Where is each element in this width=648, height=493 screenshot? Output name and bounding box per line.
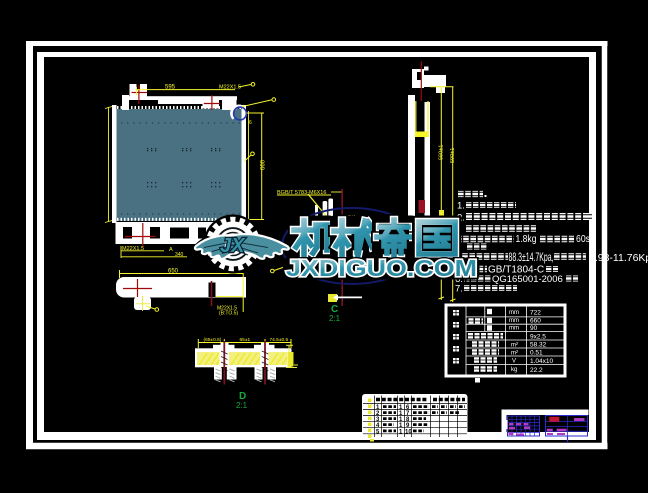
svg-text:590±1: 590±1 bbox=[450, 148, 456, 163]
svg-text:m²: m² bbox=[511, 343, 518, 349]
svg-text:7.: 7. bbox=[455, 284, 463, 295]
svg-text:88.3±14.7Kpa,: 88.3±14.7Kpa, bbox=[509, 250, 554, 264]
svg-text:1.: 1. bbox=[457, 201, 465, 212]
svg-text:QG165001-2006: QG165001-2006 bbox=[492, 274, 563, 285]
svg-text:1.04x10: 1.04x10 bbox=[530, 358, 554, 365]
svg-text:10: 10 bbox=[405, 430, 412, 436]
svg-text:0.51: 0.51 bbox=[530, 350, 543, 357]
svg-text:m²: m² bbox=[511, 351, 518, 357]
svg-text:A: A bbox=[169, 247, 173, 253]
svg-text:2:1: 2:1 bbox=[329, 314, 341, 323]
svg-text:74.5±0.5: 74.5±0.5 bbox=[270, 337, 289, 343]
svg-text:JX: JX bbox=[220, 235, 246, 257]
svg-text:6: 6 bbox=[249, 120, 252, 126]
svg-text:V: V bbox=[512, 359, 516, 365]
svg-text:58.32: 58.32 bbox=[530, 342, 547, 349]
svg-text:kg: kg bbox=[511, 367, 517, 373]
svg-text:M22X1.5: M22X1.5 bbox=[219, 85, 241, 91]
svg-text:65±1: 65±1 bbox=[240, 337, 251, 343]
svg-text:60s: 60s bbox=[576, 233, 590, 245]
svg-text:mm: mm bbox=[509, 310, 519, 316]
svg-text:660: 660 bbox=[261, 159, 267, 170]
svg-text:mm: mm bbox=[509, 326, 519, 332]
svg-text:JXDIGUO.COM: JXDIGUO.COM bbox=[286, 255, 477, 281]
svg-text:1.8kg: 1.8kg bbox=[516, 233, 537, 245]
svg-text:650: 650 bbox=[168, 269, 179, 275]
svg-text:mm: mm bbox=[509, 318, 519, 324]
svg-text:340: 340 bbox=[175, 252, 184, 258]
svg-text:2:1: 2:1 bbox=[236, 401, 248, 410]
svg-text:9x2.5: 9x2.5 bbox=[530, 334, 546, 341]
svg-text:90: 90 bbox=[530, 325, 538, 332]
svg-text:(65±0.5): (65±0.5) bbox=[204, 337, 222, 343]
svg-text:660: 660 bbox=[530, 318, 541, 325]
svg-text:22.2: 22.2 bbox=[530, 367, 543, 374]
svg-text:560±1: 560±1 bbox=[439, 145, 445, 160]
svg-text:(B:TO.5): (B:TO.5) bbox=[219, 311, 238, 317]
svg-text:595: 595 bbox=[165, 85, 176, 91]
svg-text:722: 722 bbox=[530, 310, 541, 317]
svg-text:9.98-11.76Kpa: 9.98-11.76Kpa bbox=[589, 252, 648, 264]
